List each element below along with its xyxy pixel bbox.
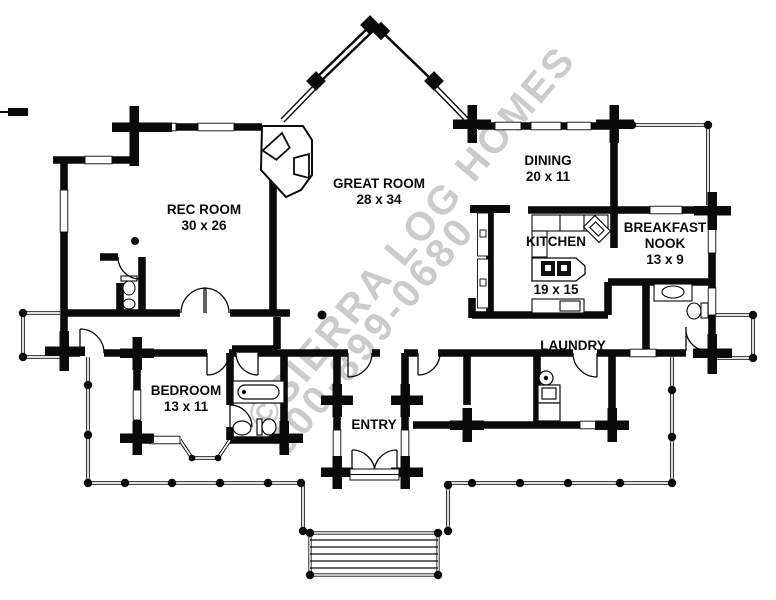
room-dims: 13 x 11 bbox=[151, 399, 222, 415]
room-label-breakfast-nook: BREAKFAST NOOK 13 x 9 bbox=[613, 220, 717, 268]
prow-windows bbox=[281, 25, 469, 122]
room-label-laundry: LAUNDRY bbox=[540, 338, 606, 354]
kitchen-island bbox=[532, 258, 585, 281]
room-name: ENTRY bbox=[351, 417, 396, 432]
wall-cap bbox=[470, 205, 510, 213]
room-dims: 13 x 9 bbox=[613, 252, 717, 268]
floorplan-drawing bbox=[0, 0, 776, 600]
room-name: BEDROOM bbox=[151, 383, 222, 398]
room-name: REC ROOM bbox=[167, 202, 241, 217]
room-name: DINING bbox=[524, 153, 571, 168]
room-label-dining: DINING 20 x 11 bbox=[524, 153, 571, 185]
room-label-bedroom: BEDROOM 13 x 11 bbox=[151, 383, 222, 415]
washer-dryer-icon bbox=[538, 371, 560, 421]
floor-plan-page: ©SIERRA LOG HOMES 800-899-0680 bbox=[0, 0, 776, 600]
stairs bbox=[310, 533, 438, 575]
room-dims: 19 x 15 bbox=[533, 282, 578, 297]
room-name: LAUNDRY bbox=[540, 338, 606, 353]
fireplace bbox=[261, 126, 312, 197]
entry-sill bbox=[350, 469, 399, 480]
room-dims: 30 x 26 bbox=[167, 218, 241, 234]
wall-stub bbox=[8, 108, 28, 116]
room-dims: 20 x 11 bbox=[524, 169, 571, 185]
room-name: BREAKFAST NOOK bbox=[624, 220, 707, 251]
toilet-icon bbox=[257, 419, 276, 435]
half-bath-fixtures bbox=[654, 284, 708, 319]
bathtub-icon bbox=[233, 381, 284, 403]
room-name: KITCHEN bbox=[526, 234, 586, 249]
room-label-kitchen-dims: 19 x 15 bbox=[533, 282, 578, 298]
room-label-entry: ENTRY bbox=[351, 417, 396, 433]
room-label-rec-room: REC ROOM 30 x 26 bbox=[167, 202, 241, 234]
room-label-great-room: GREAT ROOM 28 x 34 bbox=[333, 176, 425, 208]
sink-icon bbox=[233, 421, 251, 435]
room-label-kitchen: KITCHEN bbox=[526, 234, 586, 250]
built-in-shelves bbox=[478, 213, 489, 308]
room-name: GREAT ROOM bbox=[333, 176, 425, 191]
room-dims: 28 x 34 bbox=[333, 192, 425, 208]
